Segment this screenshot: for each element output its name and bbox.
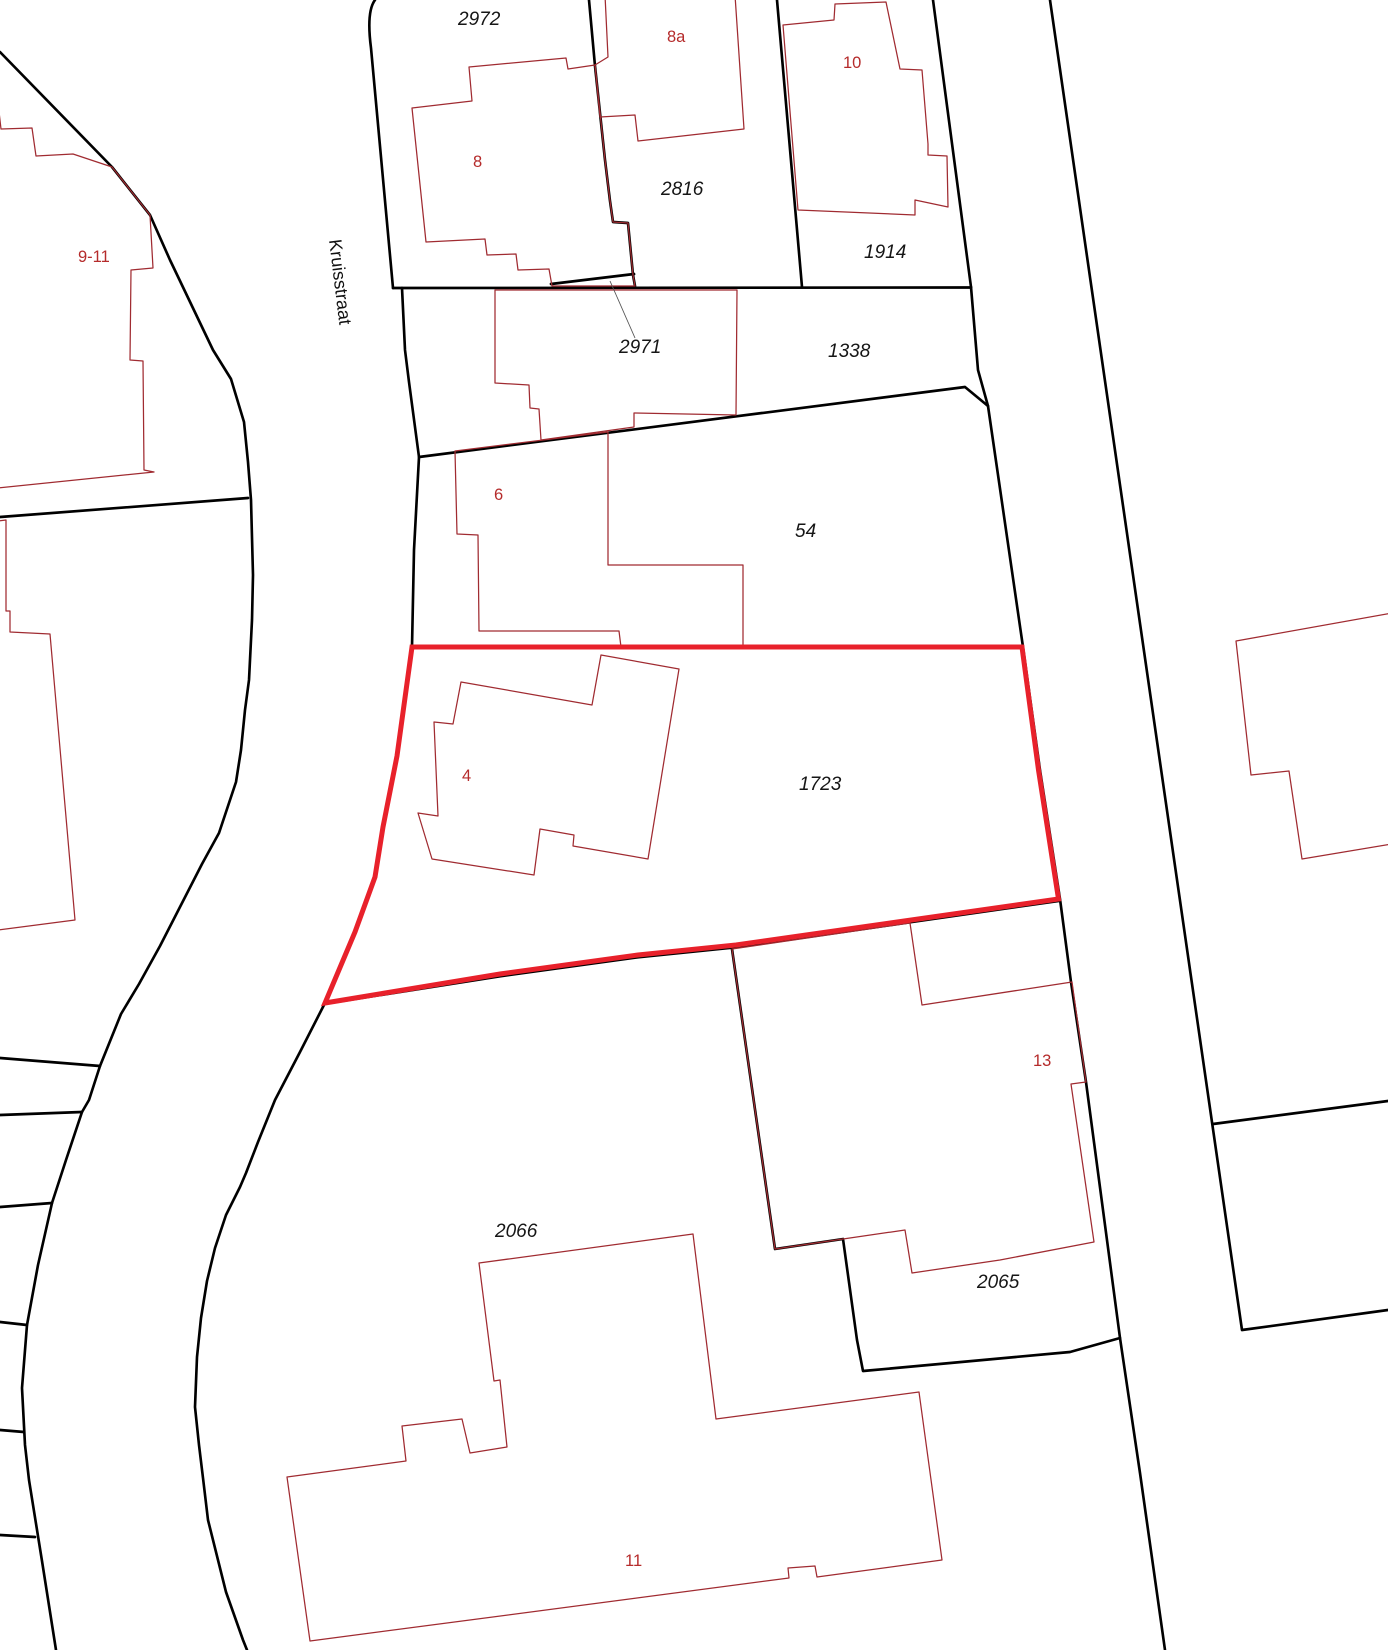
svg-text:2972: 2972: [457, 9, 501, 30]
svg-text:10: 10: [843, 54, 861, 72]
svg-text:54: 54: [795, 521, 816, 542]
svg-text:1338: 1338: [828, 341, 871, 362]
svg-text:2816: 2816: [660, 179, 704, 200]
svg-text:13: 13: [1033, 1052, 1051, 1070]
svg-text:2066: 2066: [494, 1221, 538, 1242]
svg-text:8a: 8a: [667, 28, 686, 46]
svg-text:9-11: 9-11: [78, 248, 110, 266]
svg-text:1723: 1723: [799, 774, 842, 795]
svg-text:2065: 2065: [976, 1272, 1020, 1293]
svg-text:11: 11: [625, 1552, 642, 1570]
svg-text:4: 4: [462, 767, 471, 785]
svg-text:2971: 2971: [618, 337, 661, 358]
svg-text:1914: 1914: [864, 242, 906, 263]
svg-text:6: 6: [494, 486, 503, 504]
svg-text:8: 8: [473, 153, 482, 171]
